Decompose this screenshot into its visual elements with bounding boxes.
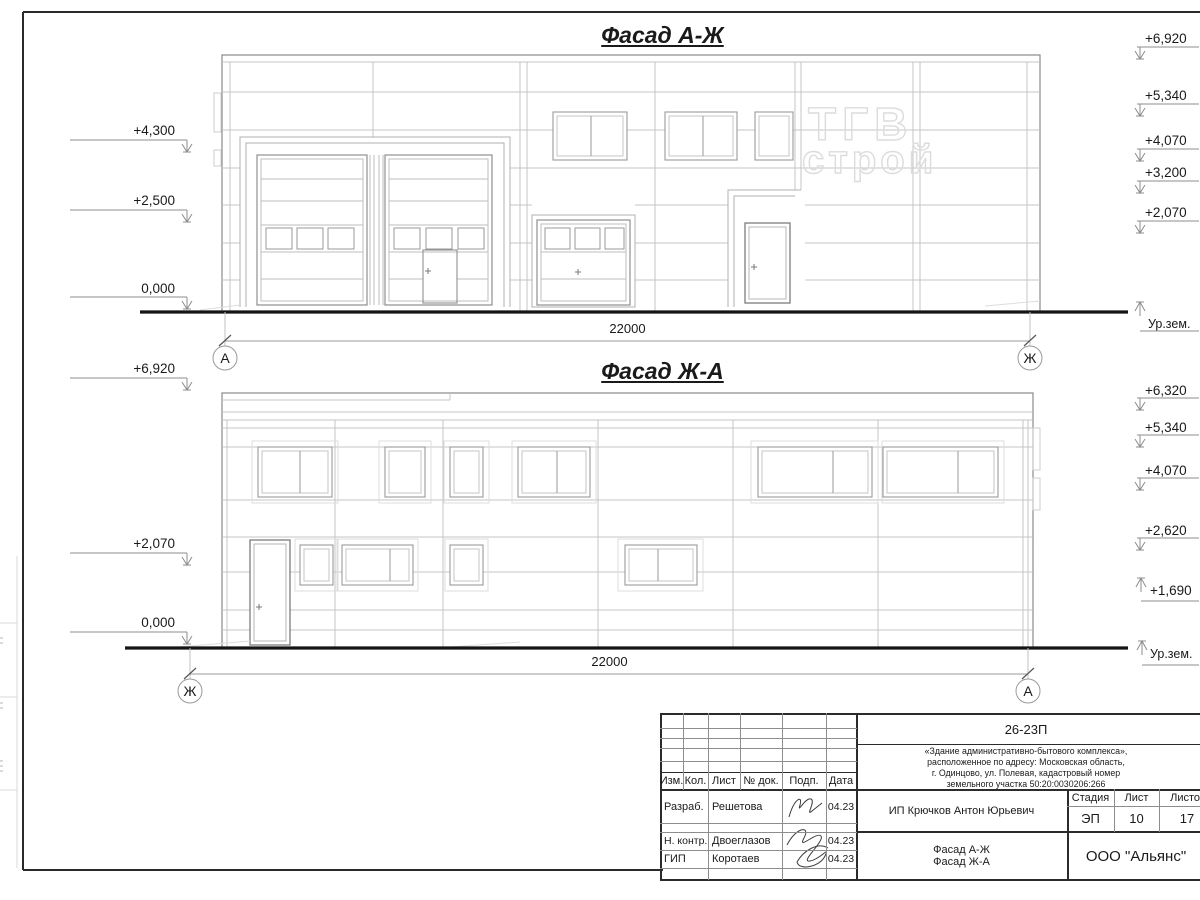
row-role: Разраб. [664, 790, 708, 823]
facade1-mark-left-1: +2,500 [75, 193, 175, 209]
sheets-value: 17 [1159, 806, 1200, 831]
column-header-data: Дата [826, 773, 856, 789]
drawing-sheet: ТГВ строй [0, 0, 1200, 900]
facade1-windows [553, 112, 793, 160]
row-date: 04.23 [826, 790, 856, 823]
project-description-line: «Здание административно-бытового комплек… [925, 746, 1128, 757]
facade1-mark-right-4: +2,070 [1145, 205, 1187, 221]
stage-header: Стадия [1067, 790, 1114, 806]
row-name: Решетова [712, 790, 780, 823]
title-block-line [660, 823, 857, 824]
column-header-list: Лист [708, 773, 740, 789]
svg-text:строй: строй [802, 138, 937, 182]
project-description-line: земельного участка 50:20:0030206:266 [947, 779, 1106, 790]
facade1-building [214, 55, 1040, 312]
row-name: Двоеглазов [712, 832, 782, 850]
column-header-izm: Изм. [660, 773, 683, 789]
left-margin-fragments [0, 556, 17, 868]
facade1-axis-left: А [211, 350, 239, 366]
facade2-mark-right-2: +4,070 [1145, 463, 1187, 479]
facade1-mark-left-0: +4,300 [75, 123, 175, 139]
facade1-ground-level-label: Ур.зем. [1148, 317, 1190, 331]
facade1-garage-portal [240, 137, 510, 307]
facade1-entry-door [728, 190, 801, 307]
project-description-line: г. Одинцово, ул. Полевая, кадастровый но… [932, 768, 1120, 779]
row-role: Н. контр. [664, 832, 710, 850]
facade1-mark-right-0: +6,920 [1145, 31, 1187, 47]
client-name: ИП Крючков Антон Юрьевич [856, 790, 1067, 831]
title-block-line [660, 748, 857, 749]
title-block-border [660, 879, 1200, 881]
row-role: ГИП [664, 850, 708, 868]
facade2-mark-right-0: +6,320 [1145, 383, 1187, 399]
row-name: Коротаев [712, 850, 782, 868]
facade1-dimension-label: 22000 [590, 322, 665, 337]
facade2-mark-right-1: +5,340 [1145, 420, 1187, 436]
project-description: «Здание административно-бытового комплек… [856, 746, 1196, 789]
facade2-mark-left-1: +2,070 [75, 536, 175, 552]
sheet-title: Фасад А-Ж Фасад Ж-А [856, 833, 1067, 879]
facade1-mark-right-1: +5,340 [1145, 88, 1187, 104]
facade1-door-post [370, 155, 383, 305]
facade2-axis-left: Ж [176, 683, 204, 699]
title-block-line [660, 761, 857, 762]
sheet-header: Лист [1114, 790, 1159, 806]
stage-value: ЭП [1067, 806, 1114, 831]
facade1-watermark: ТГВ строй [802, 98, 937, 182]
facade2-entry-door [250, 540, 290, 645]
facade2-ground-level-label: Ур.зем. [1150, 647, 1192, 661]
facade1-title: Фасад А-Ж [540, 21, 785, 49]
title-block-line [660, 738, 857, 739]
company-name: ООО "Альянс" [1067, 833, 1200, 879]
title-block-line [782, 713, 783, 880]
facade1-axis-right: Ж [1016, 350, 1044, 366]
facade2-mark-right-3: +2,620 [1145, 523, 1187, 539]
facade2-lower-windows [295, 539, 703, 591]
sheet-title-line: Фасад Ж-А [933, 856, 990, 868]
row-date: 04.23 [826, 850, 856, 868]
column-header-kol: Кол. [683, 773, 708, 789]
facade2-dimension-label: 22000 [572, 655, 647, 670]
sheet-value: 10 [1114, 806, 1159, 831]
title-block-line [708, 713, 709, 880]
column-header-doc: № док. [740, 773, 782, 789]
facade1-garage-door-1 [257, 155, 367, 305]
title-block-line [660, 728, 857, 729]
column-header-podp: Подп. [782, 773, 826, 789]
project-description-line: расположенное по адресу: Московская обла… [927, 757, 1125, 768]
facade2-elevation-symbols [70, 378, 1199, 665]
facade2-upper-windows [252, 441, 1004, 503]
facade1-garage-door-2 [385, 155, 492, 305]
facade1-garage-door-3 [532, 215, 635, 307]
facade1-mark-right-2: +4,070 [1145, 133, 1187, 149]
facade2-building [222, 393, 1040, 648]
sheets-header: Листов [1159, 790, 1200, 806]
document-code: 26-23П [856, 714, 1196, 744]
facade2-mark-right-4: +1,690 [1150, 583, 1192, 599]
facade2-mark-left-0: +6,920 [75, 361, 175, 377]
row-date: 04.23 [826, 832, 856, 850]
title-block-line [660, 868, 857, 869]
facade2-title: Фасад Ж-А [540, 357, 785, 385]
facade2-axis-right: А [1014, 683, 1042, 699]
facade2-mark-left-2: 0,000 [75, 615, 175, 631]
sheet-title-line: Фасад А-Ж [933, 844, 990, 856]
facade1-mark-left-2: 0,000 [75, 281, 175, 297]
facade1-mark-right-3: +3,200 [1145, 165, 1187, 181]
